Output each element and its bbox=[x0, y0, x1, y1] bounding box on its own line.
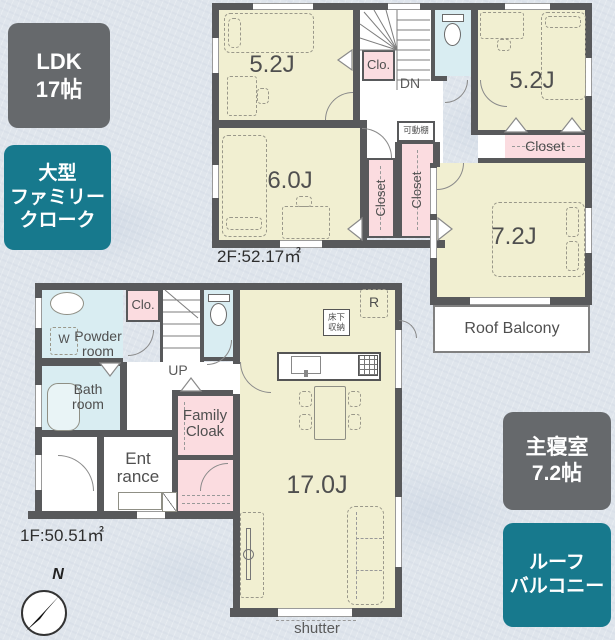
stairs-1f-up bbox=[163, 288, 200, 362]
roof-balcony-label: Roof Balcony bbox=[437, 320, 587, 337]
tv-stand bbox=[243, 549, 254, 560]
badge-family-cloak-line2: ファミリー bbox=[10, 186, 105, 210]
bath-line2: room bbox=[72, 396, 104, 412]
stairs-dn-label: DN bbox=[395, 76, 425, 91]
chair bbox=[348, 414, 361, 430]
family-cloak-line2: Cloak bbox=[186, 423, 224, 440]
powder-line2: room bbox=[82, 343, 114, 359]
entrance-line1: Ent bbox=[125, 449, 151, 468]
sofa-cushion-line bbox=[356, 570, 382, 571]
sink bbox=[50, 292, 84, 315]
room-label-ldk: 17.0J bbox=[282, 472, 352, 499]
bifold-door-icon bbox=[505, 118, 527, 132]
wall bbox=[35, 283, 402, 290]
badge-roof-balcony-line2: バルコニー bbox=[510, 575, 605, 599]
window bbox=[212, 38, 219, 73]
fridge-label: R bbox=[360, 295, 388, 310]
bifold-door-icon bbox=[438, 218, 452, 240]
room-label-2f-bedroom-nw: 5.2J bbox=[242, 52, 302, 78]
window bbox=[585, 58, 592, 96]
door-arc bbox=[445, 80, 468, 103]
family-cloak-label: Family Cloak bbox=[176, 408, 234, 440]
bath-room-label: Bath room bbox=[52, 382, 124, 412]
faucet-icon bbox=[304, 370, 308, 377]
room-label-2f-master: 7.2J bbox=[484, 224, 544, 250]
wall bbox=[478, 158, 586, 163]
entrance-label: Ent rance bbox=[104, 450, 172, 487]
closet-label-2f-right: Closet bbox=[410, 160, 424, 220]
room-2f-hall-notch bbox=[478, 135, 505, 158]
closet-label-1f-hall: Clo. bbox=[126, 298, 160, 312]
bifold-door-icon bbox=[561, 118, 583, 132]
stove bbox=[358, 355, 378, 376]
floor1-area-label: 1F:50.51㎡ bbox=[20, 527, 130, 545]
badge-ldk-line1: LDK bbox=[36, 48, 81, 76]
window bbox=[212, 165, 219, 198]
wall bbox=[395, 142, 400, 238]
dining-table bbox=[314, 386, 346, 440]
powder-line1: Powder bbox=[74, 328, 121, 344]
badge-ldk-line2: 17帖 bbox=[36, 76, 82, 104]
wall bbox=[173, 455, 233, 460]
window bbox=[470, 297, 550, 305]
chair bbox=[299, 414, 312, 430]
closet-label-2f-ne: Closet bbox=[510, 139, 580, 154]
shelf-hatch bbox=[182, 503, 230, 504]
window bbox=[35, 455, 42, 490]
badge-family-cloak-line1: 大型 bbox=[38, 162, 76, 186]
badge-family-cloak: 大型 ファミリー クローク bbox=[4, 145, 111, 250]
window bbox=[505, 3, 550, 10]
bifold-door-icon bbox=[348, 218, 362, 240]
window bbox=[585, 208, 592, 253]
window bbox=[278, 608, 352, 617]
badge-master-line2: 7.2帖 bbox=[532, 461, 582, 487]
sofa bbox=[347, 506, 384, 605]
wall bbox=[200, 288, 204, 362]
doorway bbox=[233, 364, 240, 394]
sofa-cushion-line bbox=[356, 538, 382, 539]
badge-family-cloak-line3: クローク bbox=[19, 209, 95, 233]
washer-label: W bbox=[50, 333, 78, 346]
underfloor-line1: 床下 bbox=[328, 312, 345, 322]
door-arc bbox=[399, 320, 417, 338]
window bbox=[395, 330, 402, 388]
compass-north-label: N bbox=[48, 566, 68, 583]
chair bbox=[348, 391, 361, 407]
window bbox=[35, 298, 42, 328]
shelf-hatch bbox=[182, 495, 230, 496]
entrance-line2: rance bbox=[117, 467, 160, 486]
window bbox=[395, 497, 402, 567]
family-cloak-line1: Family bbox=[183, 407, 227, 424]
pillow bbox=[566, 241, 579, 271]
movable-shelf-label: 可動棚 bbox=[397, 126, 435, 135]
chair bbox=[257, 88, 269, 104]
toilet-icon bbox=[207, 294, 231, 330]
desk bbox=[282, 206, 330, 239]
stairs-up-label: UP bbox=[162, 363, 194, 378]
window bbox=[430, 220, 437, 258]
window bbox=[388, 3, 420, 10]
pillow bbox=[226, 217, 262, 230]
badge-master-line1: 主寝室 bbox=[526, 435, 589, 461]
desk bbox=[480, 12, 524, 39]
pillow bbox=[545, 16, 581, 28]
closet-label-2f-hall: Clo. bbox=[362, 58, 395, 72]
closet-label-2f-left: Closet bbox=[374, 168, 388, 228]
chair bbox=[299, 391, 312, 407]
wall bbox=[97, 437, 104, 512]
underfloor-line2: 収納 bbox=[328, 322, 345, 332]
room-label-2f-bedroom-ne: 5.2J bbox=[502, 68, 562, 94]
pillow bbox=[228, 18, 241, 48]
sofa-seat-line bbox=[356, 512, 357, 599]
badge-roof-balcony: ルーフ バルコニー bbox=[503, 523, 611, 627]
wall bbox=[585, 3, 592, 305]
shutter-label: shutter bbox=[277, 621, 357, 637]
window bbox=[253, 3, 313, 10]
shoe-cabinet bbox=[118, 492, 162, 510]
bifold-door-icon bbox=[100, 363, 120, 376]
entrance-step bbox=[137, 511, 165, 519]
bifold-door-icon bbox=[181, 378, 201, 391]
chair bbox=[497, 39, 511, 51]
badge-master-bedroom: 主寝室 7.2帖 bbox=[503, 412, 611, 510]
chair bbox=[296, 196, 312, 207]
desk bbox=[227, 76, 257, 116]
floor2-area-label: 2F:52.17㎡ bbox=[217, 248, 327, 266]
toilet-icon bbox=[441, 14, 465, 50]
wall bbox=[431, 10, 435, 76]
wall bbox=[28, 511, 237, 519]
wall bbox=[219, 120, 360, 128]
badge-ldk: LDK 17帖 bbox=[8, 23, 110, 128]
room-label-2f-bedroom-w: 6.0J bbox=[260, 168, 320, 194]
underfloor-storage-label: 床下 収納 bbox=[323, 312, 350, 332]
wall bbox=[42, 430, 178, 437]
window bbox=[430, 168, 437, 214]
entrance-door-panel bbox=[162, 492, 177, 512]
bath-line1: Bath bbox=[74, 381, 103, 397]
wall bbox=[471, 10, 478, 135]
bifold-door-icon bbox=[338, 50, 352, 70]
compass bbox=[20, 588, 70, 638]
wall bbox=[233, 283, 240, 617]
wall bbox=[353, 10, 360, 120]
pillow bbox=[566, 207, 579, 237]
badge-roof-balcony-line1: ルーフ bbox=[529, 551, 585, 575]
window bbox=[35, 385, 42, 427]
